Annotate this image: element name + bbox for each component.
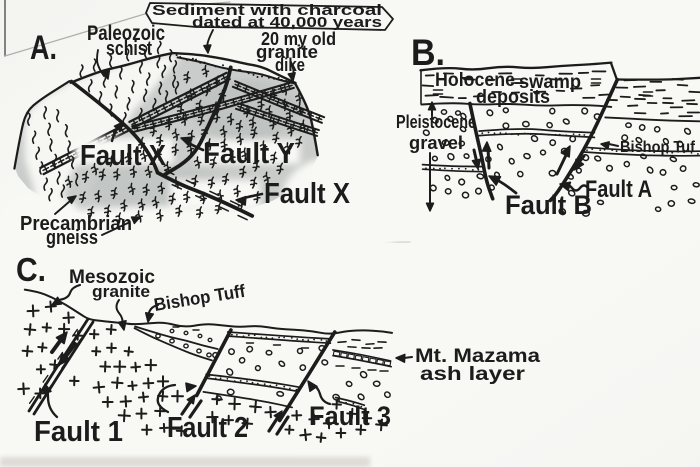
svg-text:gravel: gravel <box>409 133 463 153</box>
svg-text:gneiss: gneiss <box>46 227 98 249</box>
svg-text:deposits: deposits <box>476 87 550 108</box>
svg-text:Fault A: Fault A <box>585 176 652 203</box>
svg-text:Fault 2: Fault 2 <box>167 412 248 444</box>
svg-text:Fault Y: Fault Y <box>203 138 295 170</box>
svg-text:Fault B: Fault B <box>505 190 592 220</box>
svg-text:B.: B. <box>411 32 445 73</box>
svg-text:A.: A. <box>30 29 57 67</box>
svg-text:Fault X: Fault X <box>264 178 351 210</box>
svg-text:Fault X: Fault X <box>80 140 167 172</box>
svg-text:granite: granite <box>92 282 150 301</box>
svg-text:Bishop Tuf: Bishop Tuf <box>620 139 696 156</box>
svg-text:C.: C. <box>16 251 46 288</box>
svg-text:Fault 3: Fault 3 <box>309 401 391 431</box>
svg-text:ash layer: ash layer <box>420 364 526 385</box>
svg-text:Fault 1: Fault 1 <box>34 416 123 448</box>
svg-text:Pleistocene: Pleistocene <box>396 112 476 132</box>
svg-text:schist: schist <box>106 38 152 60</box>
svg-text:dike: dike <box>275 55 305 75</box>
